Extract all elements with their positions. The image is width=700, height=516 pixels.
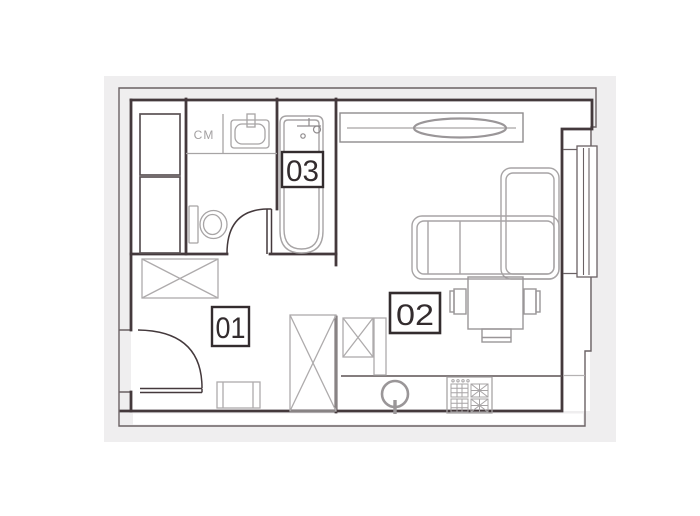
floor-plan-canvas: CM 03 — [0, 0, 700, 516]
room-label-03: 03 — [282, 152, 323, 188]
stove-burner-star-top — [471, 384, 488, 397]
stove-burner-star-bottom — [471, 399, 488, 412]
burner-pattern — [471, 399, 488, 412]
window-frame — [577, 146, 597, 277]
room-label-02: 02 — [390, 293, 440, 333]
bottom-wall-band — [133, 414, 583, 425]
room-label-01-text: 01 — [216, 312, 246, 345]
washing-machine-label: CM — [194, 128, 215, 142]
burner-pattern — [471, 384, 488, 397]
room-label-03-text: 03 — [286, 155, 319, 188]
interior-floor — [131, 100, 592, 411]
room-label-01: 01 — [212, 307, 249, 346]
floor-plan-page: CM 03 — [0, 0, 700, 516]
room-label-02-text: 02 — [396, 299, 434, 332]
